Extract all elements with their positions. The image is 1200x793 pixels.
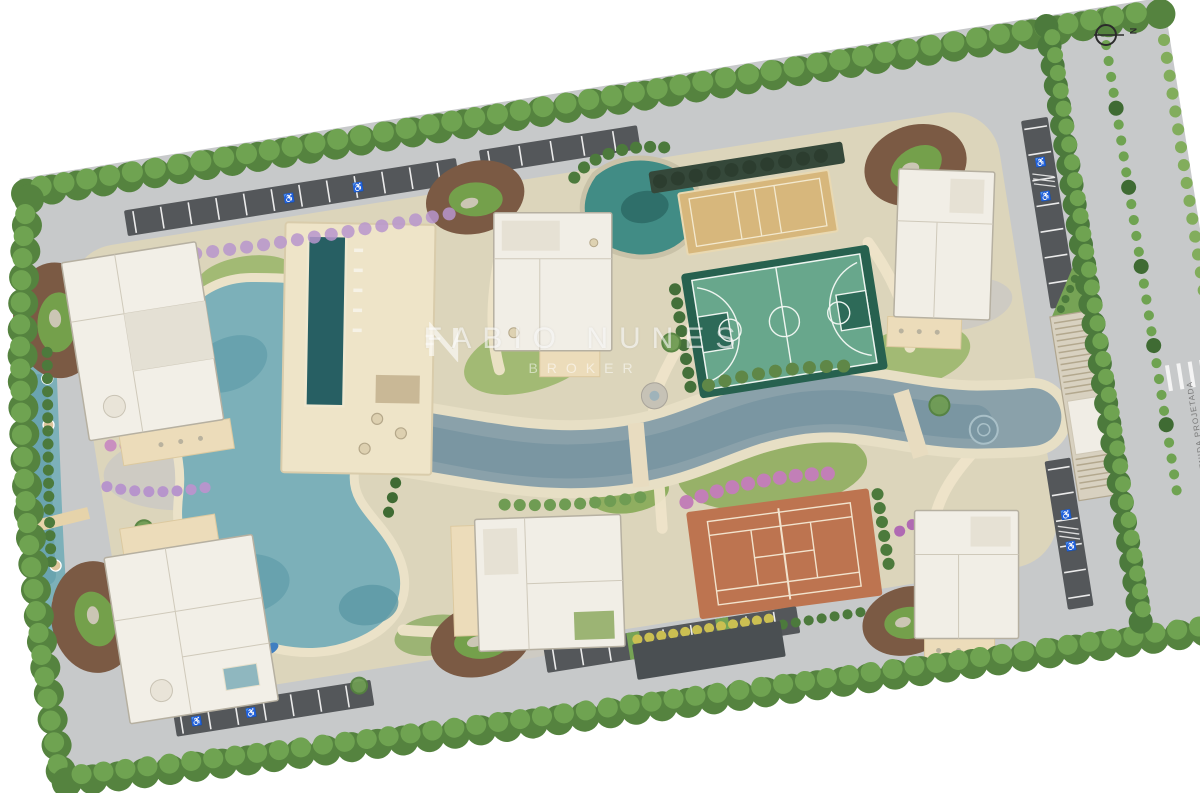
accessible-parking-icon: ♿ <box>1034 156 1047 169</box>
lap-pool <box>305 236 346 407</box>
accessible-parking-icon: ♿ <box>1060 508 1073 521</box>
terrace <box>451 525 479 636</box>
compass-north-label: N <box>1128 28 1138 35</box>
spa-pool <box>223 663 260 690</box>
accessible-parking-icon: ♿ <box>1040 189 1053 202</box>
accessible-parking-icon: ♿ <box>352 181 365 194</box>
accessible-parking-icon: ♿ <box>1065 540 1078 553</box>
pool-bar <box>375 375 419 404</box>
building-bottom-center <box>451 514 626 652</box>
building-bottom-left <box>100 509 279 724</box>
accessible-parking-icon: ♿ <box>283 192 296 205</box>
terrace <box>540 351 600 377</box>
site-plan: ♿ ♿ ♿ ♿ ♿ ♿ ♿ ♿ <box>0 0 1200 793</box>
masterplan-canvas: ♿ ♿ ♿ ♿ ♿ ♿ ♿ ♿ <box>0 0 1200 793</box>
siteplan-svg: ♿ ♿ ♿ ♿ ♿ ♿ ♿ ♿ <box>0 0 1200 793</box>
accessible-parking-icon: ♿ <box>190 715 203 728</box>
green-roof <box>574 611 615 640</box>
terrace <box>887 316 962 349</box>
accessible-parking-icon: ♿ <box>245 706 258 719</box>
lap-pool-deck <box>281 222 435 475</box>
